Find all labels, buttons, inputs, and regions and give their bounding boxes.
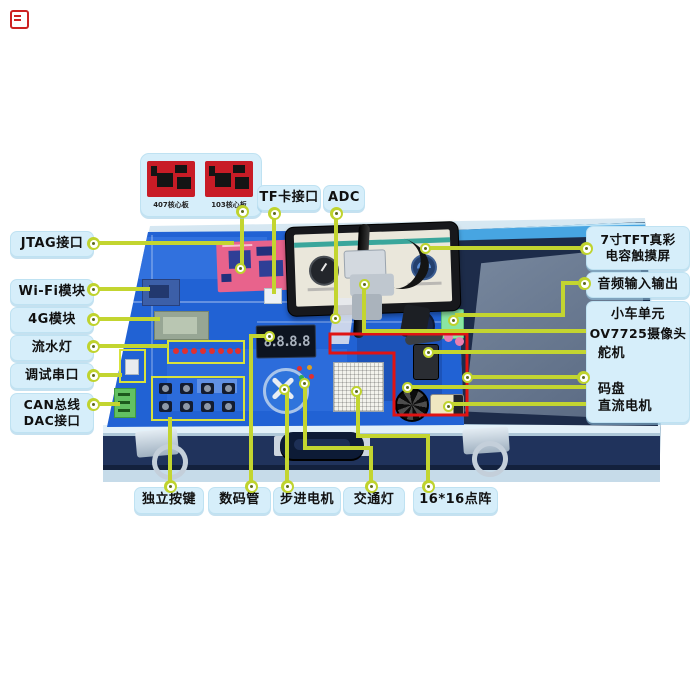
connector-dot	[422, 480, 435, 493]
connector-line	[356, 391, 360, 436]
connector-dot	[281, 480, 294, 493]
4g-module	[154, 311, 209, 340]
connector-dot	[580, 242, 593, 255]
label-jtag: JTAG接口	[10, 231, 94, 257]
connector-line	[430, 350, 586, 354]
wifi-module	[142, 279, 180, 306]
connector-dot	[279, 384, 290, 395]
connector-dot	[245, 480, 258, 493]
annotated-product-diagram: 8.8.8.8	[0, 0, 700, 700]
connector-line	[303, 385, 307, 448]
connector-dot	[420, 243, 431, 254]
camera-clamp-mid	[350, 274, 394, 297]
connector-dot	[87, 398, 100, 411]
connector-line	[409, 385, 586, 389]
label-seven-segment: 数码管	[208, 487, 271, 514]
connector-dot	[87, 283, 100, 296]
seven-segment-display: 8.8.8.8	[256, 324, 317, 358]
connector-dot	[164, 480, 177, 493]
car-unit-servo: 舵机	[598, 346, 625, 362]
connector-dot	[577, 371, 590, 384]
connector-line	[96, 241, 234, 245]
core-board-407-photo	[147, 161, 195, 197]
connector-line	[428, 246, 586, 250]
connector-dot	[443, 401, 454, 412]
connector-dot	[351, 386, 362, 397]
case-latch-left	[136, 430, 196, 480]
label-tf-card: TF卡接口	[257, 185, 321, 211]
label-4g: 4G模块	[10, 307, 94, 333]
connector-line	[249, 338, 253, 487]
connector-dot	[87, 237, 100, 250]
connector-line	[285, 391, 289, 487]
connector-line	[334, 216, 338, 318]
connector-line	[561, 281, 565, 317]
connector-dot	[299, 378, 310, 389]
connector-line	[96, 287, 150, 291]
car-unit-camera: OV7725摄像头	[587, 326, 689, 342]
label-audio-io: 音频输入输出	[586, 272, 690, 298]
label-tft-screen: 7寸TFT真彩 电容触摸屏	[586, 226, 690, 270]
debug-serial-port	[119, 349, 146, 383]
connector-dot	[448, 315, 459, 326]
connector-line	[469, 375, 584, 379]
car-unit-encoder: 码盘	[598, 382, 625, 398]
connector-dot	[359, 279, 370, 290]
connector-dot	[87, 340, 100, 353]
connector-dot	[365, 480, 378, 493]
connector-line	[362, 286, 366, 333]
car-unit-title: 小车单元	[587, 307, 689, 323]
connector-dot	[87, 369, 100, 382]
connector-dot	[402, 382, 413, 393]
connector-line	[96, 344, 168, 348]
core-board-103-photo	[205, 161, 253, 197]
label-debug-serial: 调试串口	[10, 363, 94, 389]
connector-line	[168, 417, 172, 487]
case-latch-right	[463, 428, 523, 476]
keypad-outline	[151, 376, 245, 421]
label-led-bar: 流水灯	[10, 335, 94, 361]
connector-dot	[235, 263, 246, 274]
label-car-unit-group: 小车单元 OV7725摄像头 舵机 码盘 直流电机	[586, 301, 690, 423]
connector-dot	[330, 207, 343, 220]
connector-line	[272, 216, 276, 294]
connector-line	[455, 313, 563, 317]
red-list-icon	[10, 10, 29, 29]
led-bar-outline	[167, 340, 245, 364]
car-unit-motor: 直流电机	[598, 399, 652, 415]
core-board-mounted	[216, 240, 292, 293]
label-can-dac: CAN总线 DAC接口	[10, 393, 94, 433]
label-wifi: Wi-Fi模块	[10, 279, 94, 305]
connector-line	[366, 329, 586, 333]
core-board-caption: 407核心板	[147, 200, 195, 210]
connector-dot	[330, 313, 341, 324]
connector-dot	[423, 347, 434, 358]
camera-clamp-low	[352, 294, 382, 320]
connector-line	[450, 402, 586, 406]
connector-line	[356, 434, 430, 438]
connector-dot	[462, 372, 473, 383]
label-adc: ADC	[323, 185, 365, 211]
connector-line	[303, 446, 373, 450]
connector-line	[96, 317, 160, 321]
connector-dot	[268, 207, 281, 220]
connector-line	[240, 214, 244, 268]
connector-dot	[578, 277, 591, 290]
connector-dot	[264, 331, 275, 342]
connector-dot	[236, 205, 249, 218]
connector-dot	[87, 313, 100, 326]
